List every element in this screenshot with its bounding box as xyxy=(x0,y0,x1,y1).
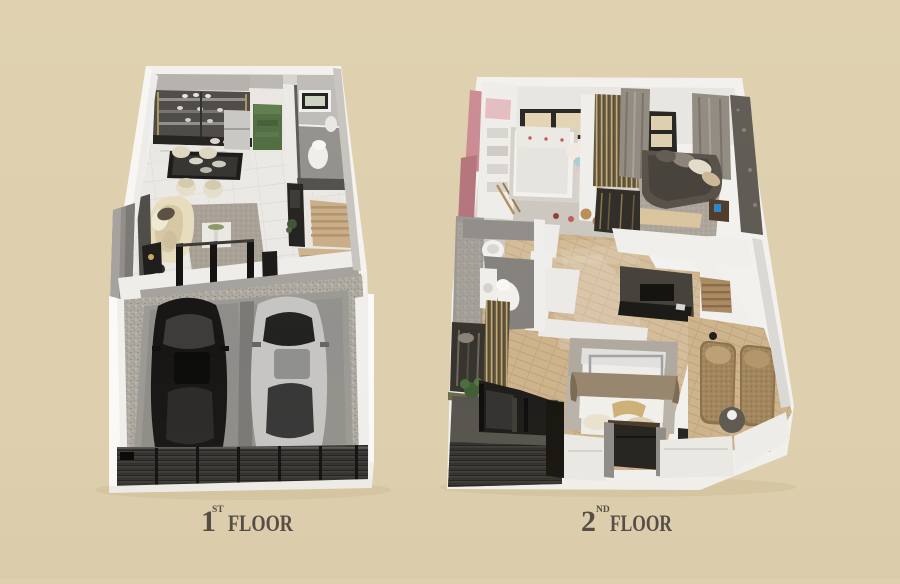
svg-text:FLOOR: FLOOR xyxy=(228,511,293,536)
svg-text:ST: ST xyxy=(212,505,224,515)
svg-text:FLOOR: FLOOR xyxy=(610,511,672,536)
svg-text:ND: ND xyxy=(596,505,610,515)
svg-text:2: 2 xyxy=(581,505,596,538)
